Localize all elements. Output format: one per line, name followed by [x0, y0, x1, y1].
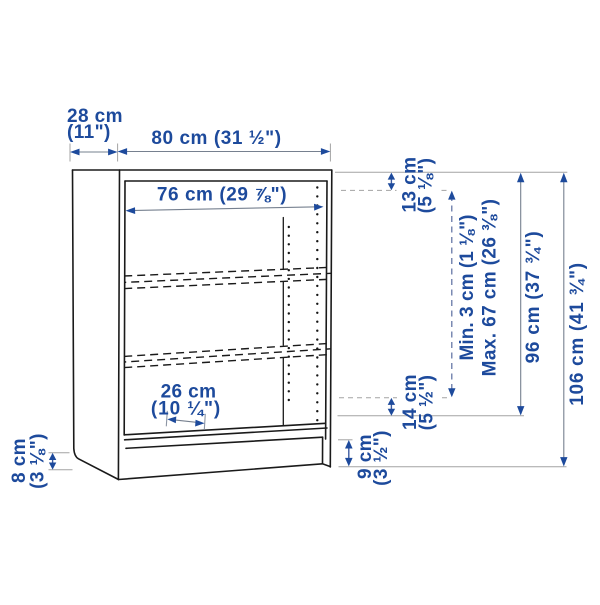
svg-text:106 cm (41 ¾"): 106 cm (41 ¾") — [567, 262, 588, 405]
svg-text:(10 ¼"): (10 ¼") — [151, 399, 221, 420]
svg-text:80 cm (31 ½"): 80 cm (31 ½") — [151, 128, 281, 149]
svg-text:(5 ½"): (5 ½") — [417, 375, 438, 431]
svg-text:Min. 3 cm (1 ⅛"): Min. 3 cm (1 ⅛") — [457, 214, 478, 360]
svg-text:96 cm (37 ¾"): 96 cm (37 ¾") — [523, 231, 544, 364]
svg-text:(11"): (11") — [67, 122, 111, 143]
svg-text:(5 ⅛"): (5 ⅛") — [416, 158, 437, 214]
svg-text:76 cm (29 ⅞"): 76 cm (29 ⅞") — [157, 185, 287, 206]
svg-text:(3 ½"): (3 ½") — [371, 430, 392, 486]
svg-text:Max. 67 cm (26 ⅜"): Max. 67 cm (26 ⅜") — [480, 199, 501, 377]
svg-text:(3 ⅛"): (3 ⅛") — [28, 433, 49, 489]
